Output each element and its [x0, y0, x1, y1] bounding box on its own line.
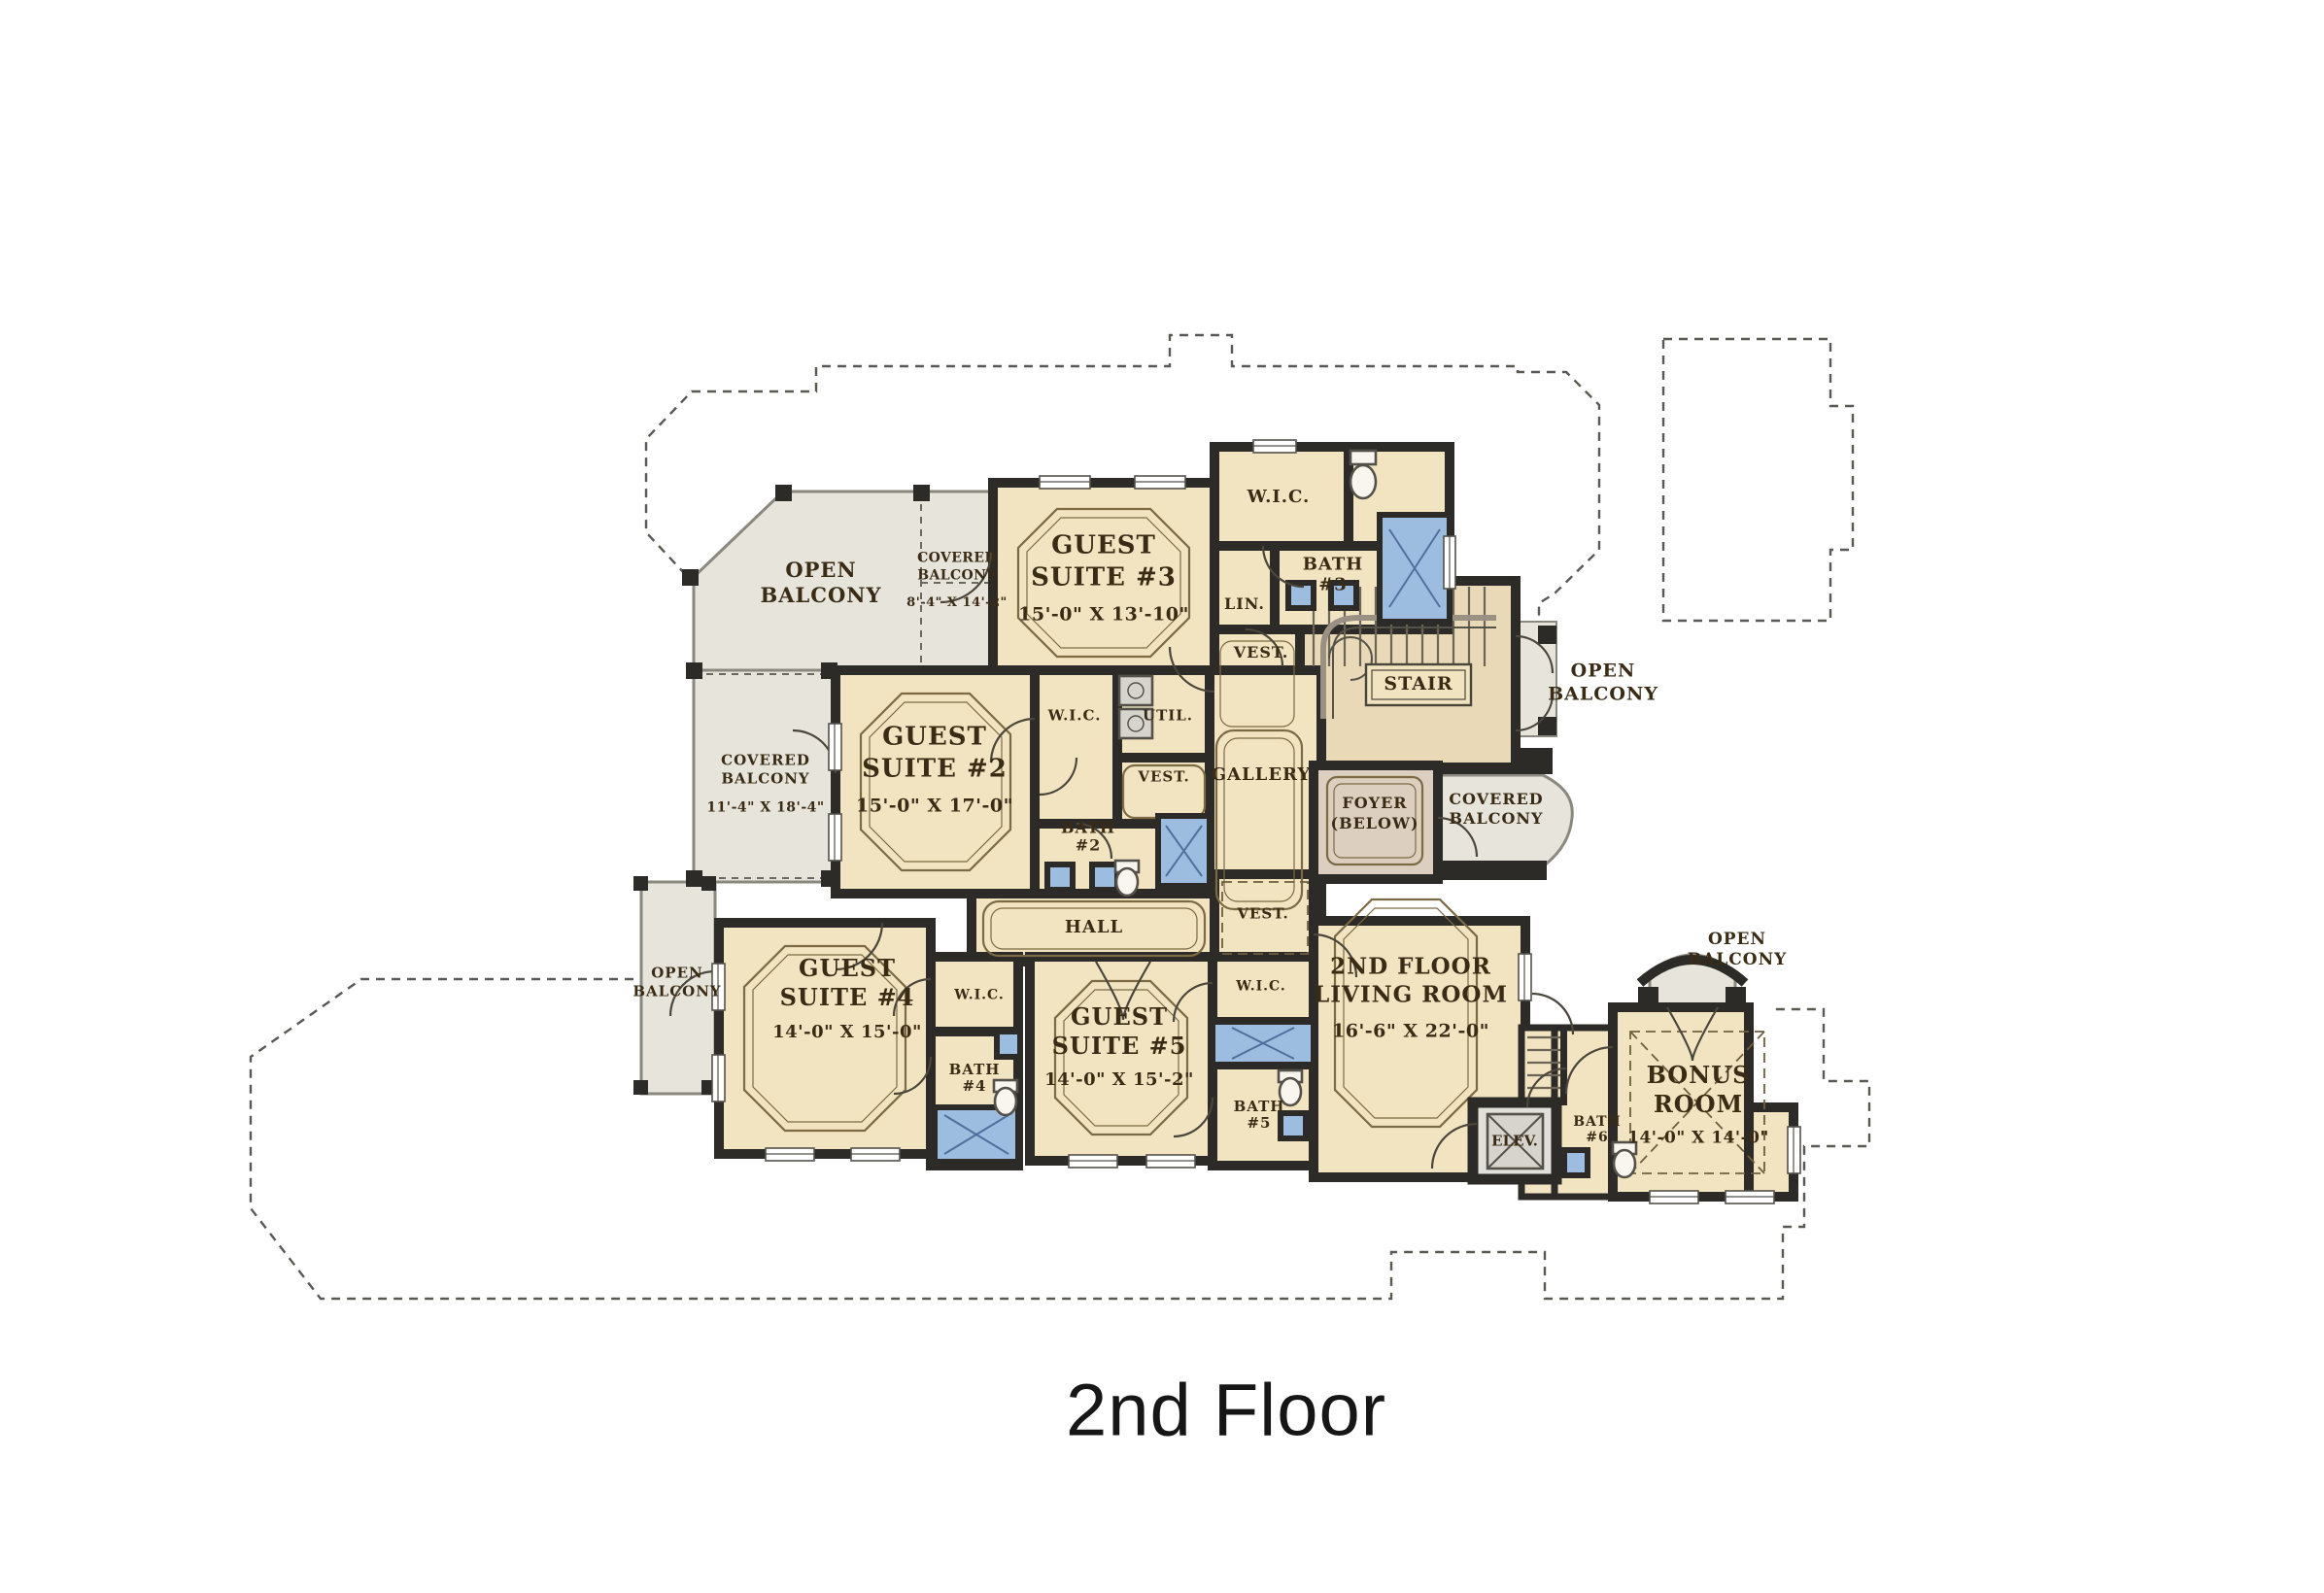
- room-label-covered-balcony-left: COVERED BALCONY: [721, 751, 810, 788]
- room-label-guest-suite-2: GUEST SUITE #2: [862, 722, 1008, 785]
- room-label-open-balcony-lower-left: OPEN BALCONY: [632, 964, 721, 1000]
- toilet-icon: [1115, 861, 1139, 896]
- room-label-bonus-room: BONUS ROOM: [1647, 1061, 1751, 1119]
- page-title: 2nd Floor: [1066, 1369, 1386, 1453]
- toilet-icon: [1350, 451, 1376, 498]
- room-dims-covered-balcony-top: 8'-4" X 14'-2": [906, 596, 1008, 610]
- room-label-guest-suite-3: GUEST SUITE #3: [1031, 530, 1177, 593]
- room-label-living-room: 2ND FLOOR LIVING ROOM: [1314, 953, 1508, 1009]
- room-label-wic-5: W.I.C.: [1236, 978, 1286, 996]
- room-dims-guest-suite-3: 15'-0" X 13'-10": [1018, 605, 1189, 626]
- bonus-room-ext: [1749, 1107, 1794, 1197]
- room-dims-guest-suite-2: 15'-0" X 17'-0": [856, 796, 1013, 817]
- room-dims-covered-balcony-left: 11'-4" X 18'-4": [706, 800, 824, 815]
- room-dims-bonus-room: 14'-0" X 14'-0": [1627, 1130, 1769, 1148]
- room-label-bath-5: BATH #5: [1234, 1099, 1285, 1133]
- sink-icon: [1092, 864, 1117, 890]
- room-label-util: UTIL.: [1143, 707, 1193, 726]
- floor-plan-page: OPEN BALCONY COVERED BALCONY 8'-4" X 14'…: [0, 0, 2324, 1593]
- room-label-wic-2: W.I.C.: [1048, 707, 1102, 726]
- room-label-linen: LIN.: [1224, 594, 1265, 614]
- room-label-bath-6: BATH #6: [1573, 1114, 1622, 1145]
- room-label-open-balcony-right: OPEN BALCONY: [1548, 660, 1658, 706]
- room-label-wic-top: W.I.C.: [1247, 487, 1311, 509]
- room-label-vest-top: VEST.: [1234, 643, 1289, 662]
- room-label-bath-2: BATH #2: [1061, 820, 1115, 856]
- room-label-covered-balcony-right: COVERED BALCONY: [1449, 790, 1543, 829]
- room-label-open-balcony-bottom-right: OPEN BALCONY: [1688, 930, 1788, 971]
- room-dims-guest-suite-4: 14'-0" X 15'-0": [772, 1023, 922, 1042]
- sink-icon: [1564, 1150, 1588, 1175]
- room-label-wic-4: W.I.C.: [954, 987, 1005, 1004]
- sink-icon: [997, 1032, 1020, 1057]
- room-label-stair: STAIR: [1384, 673, 1452, 696]
- room-label-gallery: GALLERY: [1212, 764, 1312, 787]
- room-dims-guest-suite-5: 14'-0" X 15'-2": [1044, 1070, 1194, 1090]
- room-label-foyer: FOYER (BELOW): [1330, 794, 1418, 834]
- room-label-guest-suite-5: GUEST SUITE #5: [1052, 1002, 1187, 1061]
- room-label-vest-low: VEST.: [1237, 905, 1288, 924]
- wic-2-room: [1035, 670, 1117, 824]
- room-label-hall: HALL: [1065, 917, 1123, 939]
- sink-icon: [1047, 864, 1073, 890]
- room-label-covered-balcony-top: COVERED BALCONY: [917, 551, 997, 585]
- room-label-vest-2: VEST.: [1138, 768, 1189, 787]
- room-label-bath-3: BATH #3: [1303, 555, 1364, 594]
- room-dims-living-room: 16'-6" X 22'-0": [1332, 1022, 1489, 1042]
- floor-plan-drawing: [0, 0, 2324, 1593]
- room-label-open-balcony-top-left: OPEN BALCONY: [760, 558, 881, 609]
- room-label-bath-4: BATH #4: [949, 1062, 1001, 1096]
- room-label-guest-suite-4: GUEST SUITE #4: [780, 954, 915, 1012]
- room-label-elevator: ELEV.: [1491, 1133, 1538, 1151]
